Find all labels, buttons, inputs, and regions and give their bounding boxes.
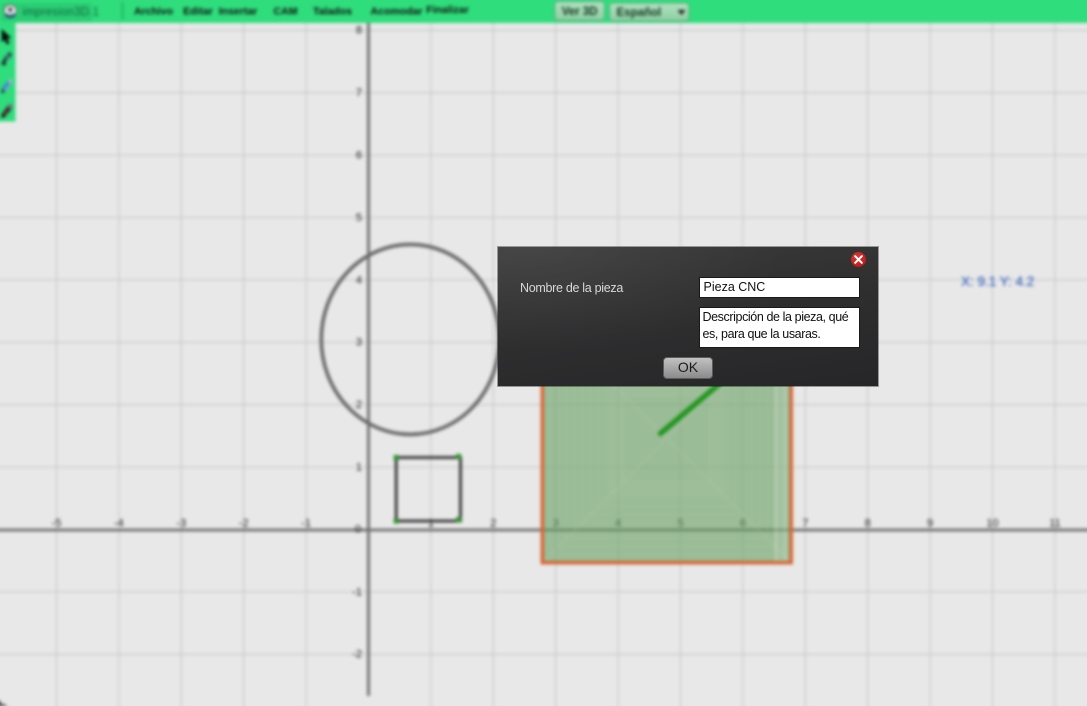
svg-text:-1: -1 [301,518,311,530]
svg-text:5: 5 [356,212,362,224]
svg-text:11: 11 [1049,518,1060,530]
svg-text:-4: -4 [114,518,124,530]
svg-text:1: 1 [356,462,362,474]
svg-text:Acomodar: Acomodar [371,6,423,18]
svg-text:-3: -3 [176,518,186,530]
svg-text:Insertar: Insertar [219,6,258,18]
svg-text:9: 9 [927,518,933,530]
svg-text:1: 1 [428,518,434,530]
svg-text:4: 4 [356,274,362,286]
svg-text:2: 2 [356,399,362,411]
svg-text:10: 10 [986,518,998,530]
svg-text:Ver 3D: Ver 3D [562,6,598,18]
svg-text:7: 7 [802,518,808,530]
svg-text:-2: -2 [352,649,362,661]
svg-text:8: 8 [356,25,362,37]
svg-text:2: 2 [490,518,496,530]
svg-text:8: 8 [865,518,871,530]
svg-text:-1: -1 [352,586,362,598]
svg-text:Finalizar: Finalizar [426,4,469,16]
svg-text:Talados: Talados [313,6,352,18]
svg-text:Archivo: Archivo [134,6,173,18]
svg-text:-5: -5 [52,518,62,530]
svg-text:3: 3 [356,337,362,349]
svg-text:6: 6 [356,150,362,162]
svg-text:7: 7 [356,87,362,99]
svg-text:CAM: CAM [274,6,298,18]
svg-text:X: 9.1 Y: 4.2: X: 9.1 Y: 4.2 [961,274,1034,289]
svg-text:Español: Español [617,7,662,19]
svg-text:Editar: Editar [183,6,213,18]
svg-text:impresion3D.1: impresion3D.1 [23,7,100,19]
svg-text:-2: -2 [239,518,249,530]
svg-text:0: 0 [355,524,361,536]
